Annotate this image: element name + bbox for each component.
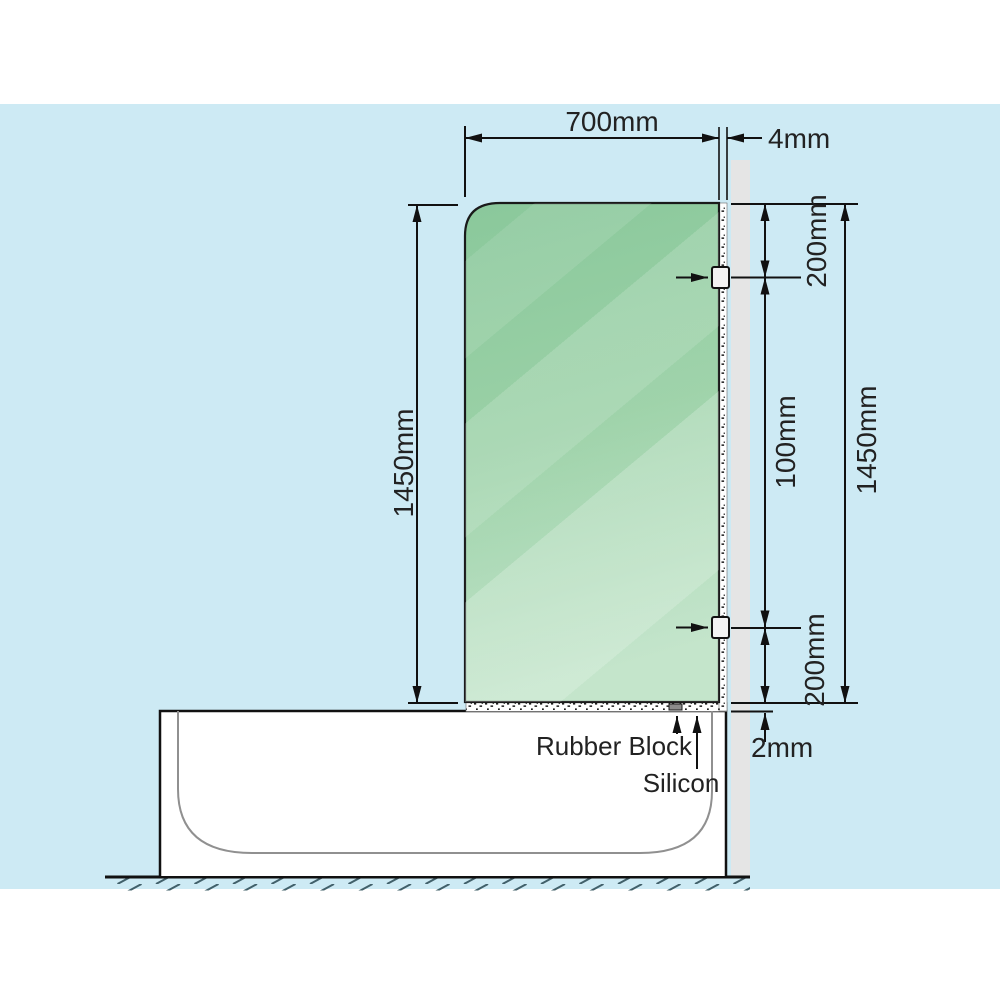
dim-height-right-label: 1450mm (851, 386, 882, 495)
wall-bracket-top (712, 267, 729, 288)
rubber-block-label: Rubber Block (536, 731, 693, 761)
rubber-block (669, 704, 682, 710)
wall-bracket-bottom (712, 617, 729, 638)
dim-bottom-gap-label: 2mm (751, 732, 813, 763)
silicon-label: Silicon (643, 768, 720, 798)
wall (731, 160, 750, 877)
dim-bottom-bracket-label: 200mm (799, 613, 830, 706)
seal-strip-bottom-speckle (466, 703, 727, 712)
dim-height-left-label: 1450mm (388, 409, 419, 518)
dim-gap-4mm-label: 4mm (768, 123, 830, 154)
dim-between-brackets-label: 100mm (770, 395, 801, 488)
shower-screen-diagram: 700mm 4mm 1450mm 200mm 100mm 200mm 1450m… (0, 0, 1000, 1000)
diagram-canvas: 700mm 4mm 1450mm 200mm 100mm 200mm 1450m… (0, 0, 1000, 1000)
floor-hatching (105, 879, 750, 891)
dim-top-bracket-label: 200mm (801, 194, 832, 287)
silicon-seal-bottom (466, 703, 727, 712)
dim-glass-width-label: 700mm (565, 106, 658, 137)
